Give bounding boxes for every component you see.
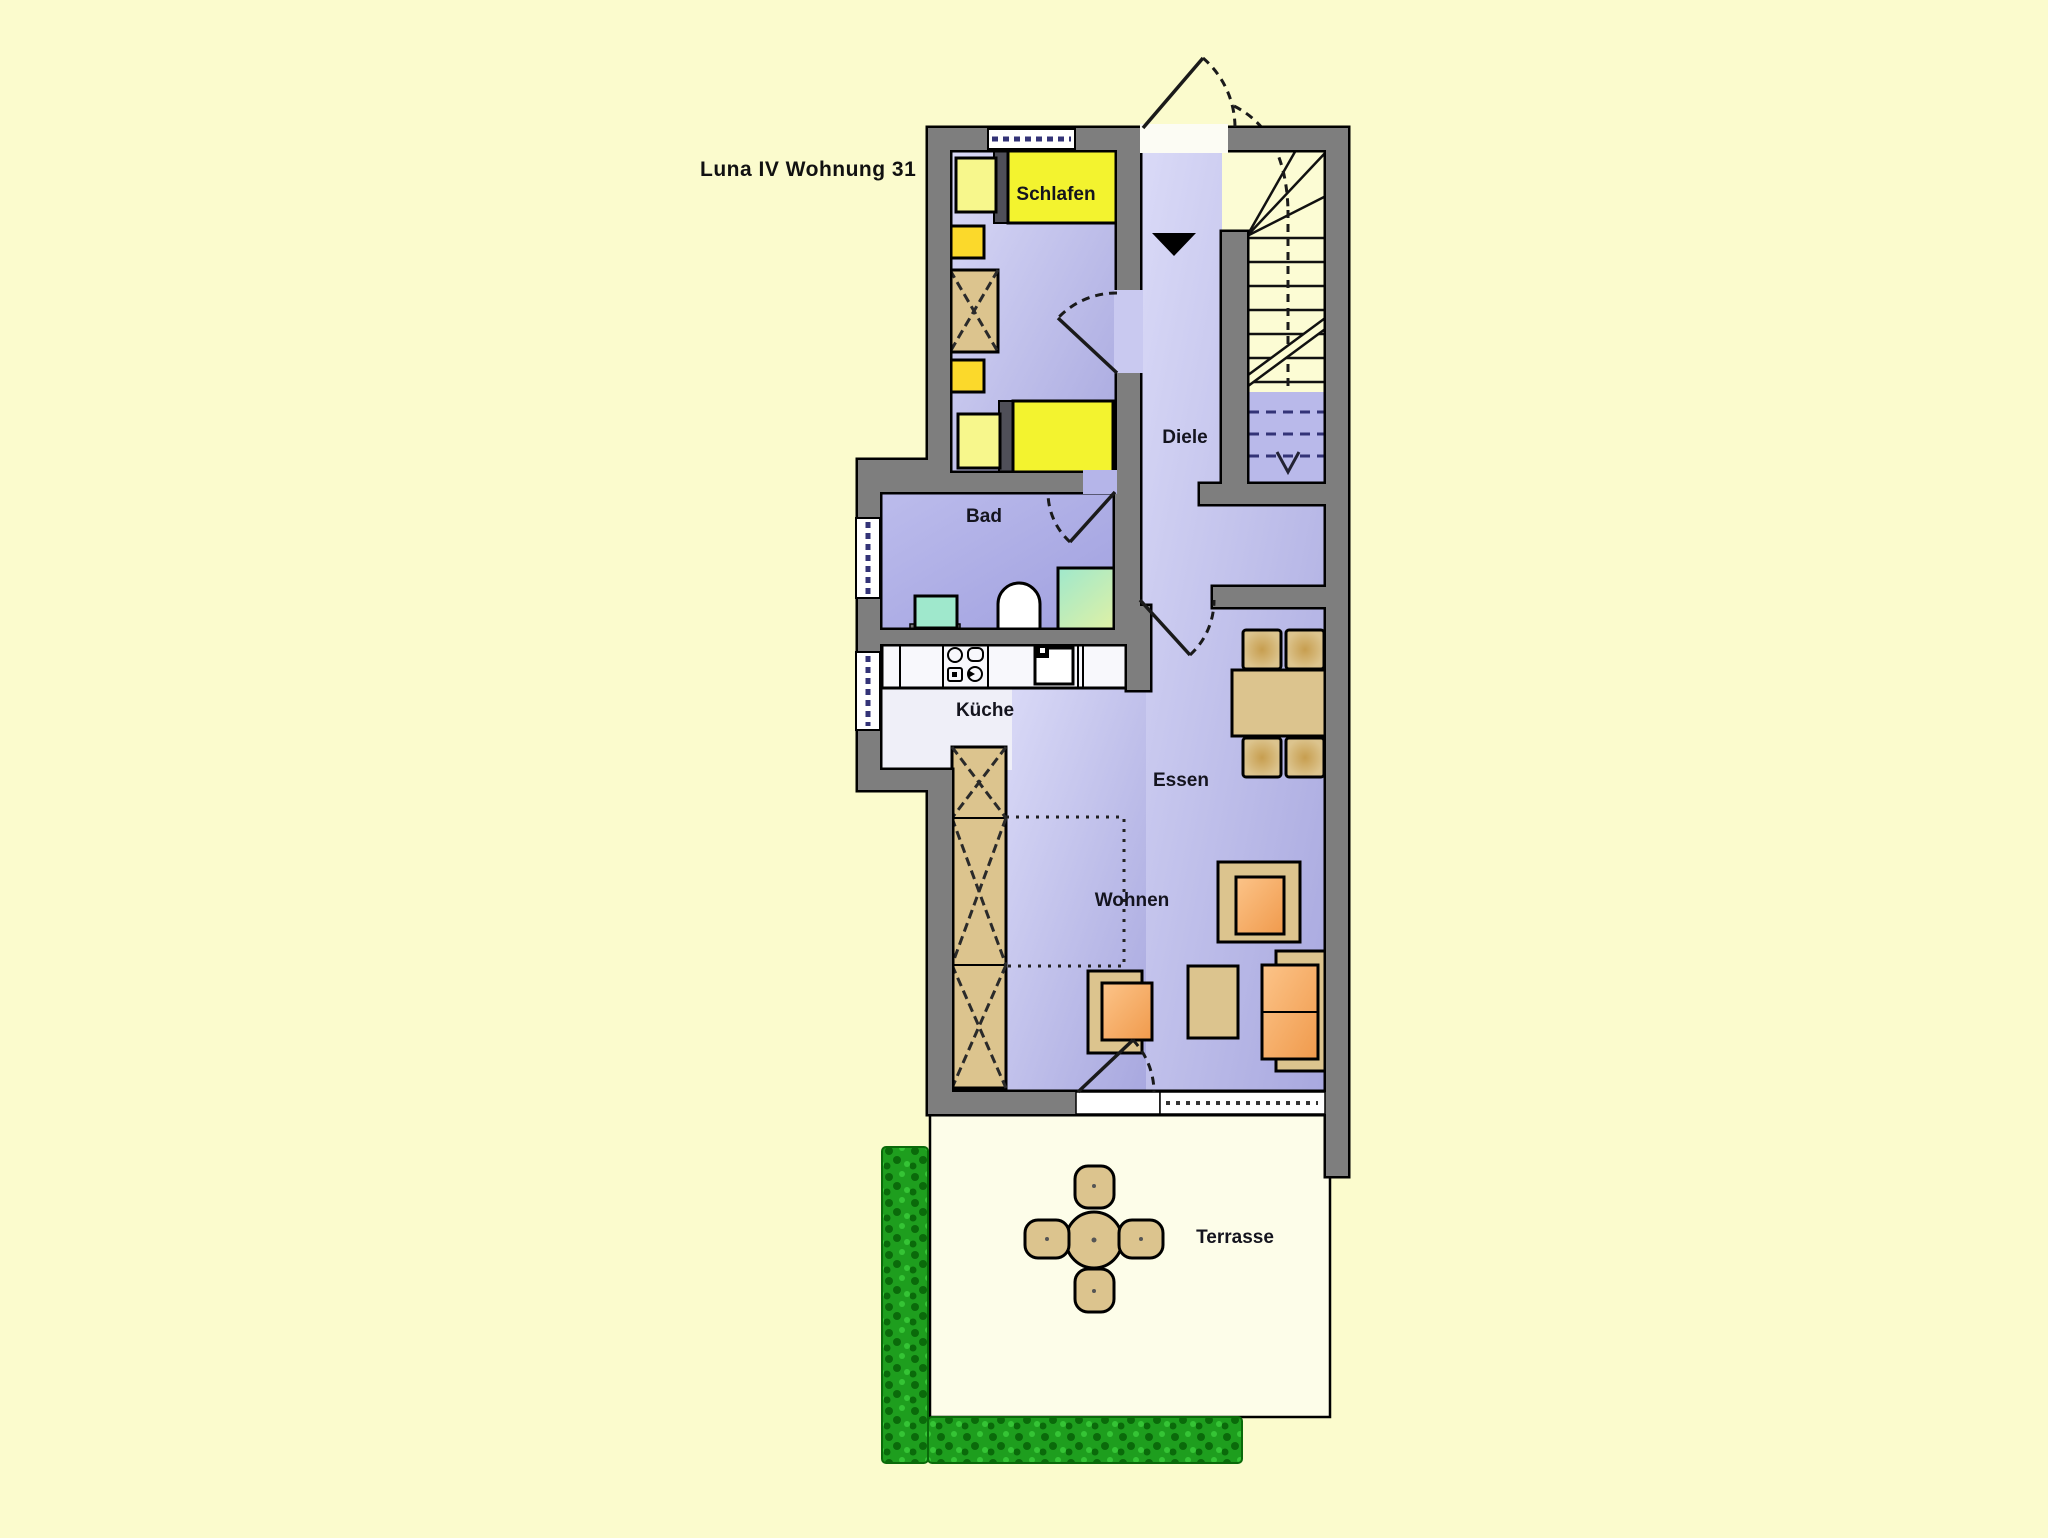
room-label-schlafen: Schlafen <box>1016 184 1095 205</box>
armchair-2-seat <box>1102 983 1152 1040</box>
terrace-area <box>882 1114 1330 1463</box>
room-label-bad: Bad <box>966 506 1002 527</box>
bedroom-door-opening <box>1114 290 1143 373</box>
bath-door-opening <box>1083 470 1117 494</box>
hedge-left <box>882 1147 928 1463</box>
room-label-wohnen: Wohnen <box>1095 890 1170 911</box>
chair-dot <box>1092 1184 1096 1188</box>
bath-sink <box>915 596 957 628</box>
room-label-kueche: Küche <box>956 700 1014 721</box>
nightstand-1 <box>948 226 984 258</box>
kitchen-sink <box>1035 645 1073 684</box>
room-label-terrasse: Terrasse <box>1196 1227 1274 1248</box>
bed-2-pillow <box>958 414 1000 468</box>
bed-2 <box>1013 401 1113 473</box>
terrace-table-center-dot <box>1092 1238 1097 1243</box>
chair-dot <box>1045 1237 1049 1241</box>
dining-chair-3 <box>1243 738 1281 777</box>
kueche-fixtures <box>882 642 1133 688</box>
room-label-essen: Essen <box>1153 770 1209 791</box>
essen-furniture <box>1232 630 1325 777</box>
floor-plan-svg: Luna IV Wohnung 31 Schlafen Diele Bad Kü… <box>0 0 2048 1538</box>
wardrobe-wohnen <box>952 747 1006 1088</box>
coffee-table <box>1188 966 1238 1038</box>
terrace-door-opening <box>1076 1092 1160 1114</box>
nightstand-2 <box>948 360 984 392</box>
room-label-diele: Diele <box>1162 427 1207 448</box>
plan-title: Luna IV Wohnung 31 <box>700 158 916 181</box>
bed-1-pillow <box>956 158 996 212</box>
dining-chair-1 <box>1243 630 1281 669</box>
kitchen-counter <box>882 642 1133 688</box>
toilet <box>998 583 1040 630</box>
terrace-floor <box>930 1114 1330 1417</box>
window-living <box>1160 1092 1325 1114</box>
dining-table <box>1232 670 1325 736</box>
chair-dot <box>1139 1237 1143 1241</box>
dining-chair-2 <box>1286 630 1324 669</box>
chair-dot <box>1092 1289 1096 1293</box>
entrance-opening <box>1140 124 1228 153</box>
hedge-bottom <box>928 1417 1242 1463</box>
dining-chair-4 <box>1286 738 1324 777</box>
armchair-1-seat <box>1236 877 1284 934</box>
